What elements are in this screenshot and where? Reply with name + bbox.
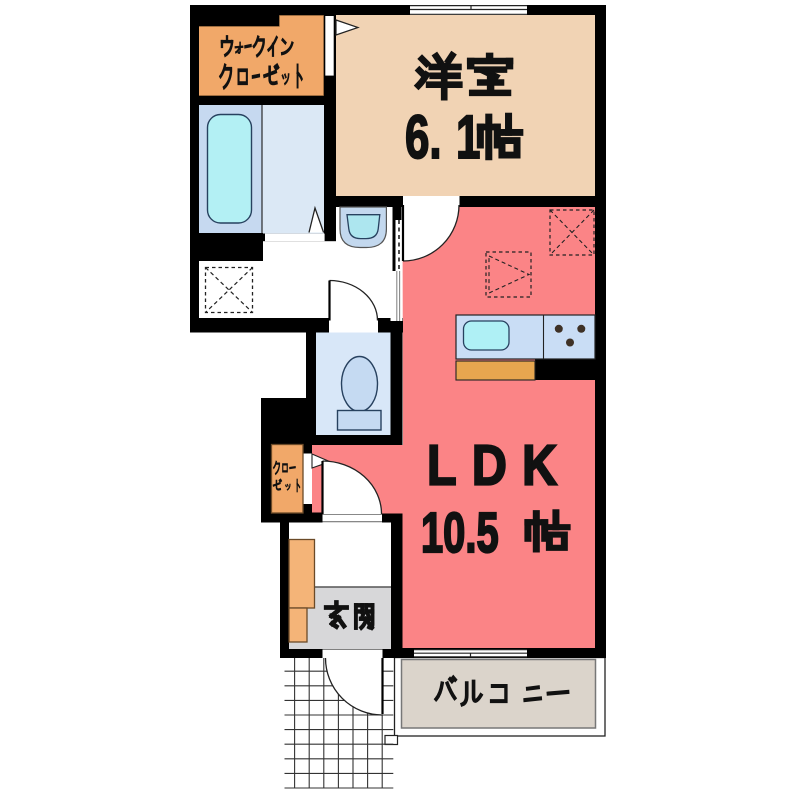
svg-text:10.5: 10.5 (421, 501, 499, 565)
svg-text:1: 1 (456, 104, 480, 172)
svg-text:LDK: LDK (427, 434, 572, 498)
svg-text:6.: 6. (405, 104, 442, 172)
